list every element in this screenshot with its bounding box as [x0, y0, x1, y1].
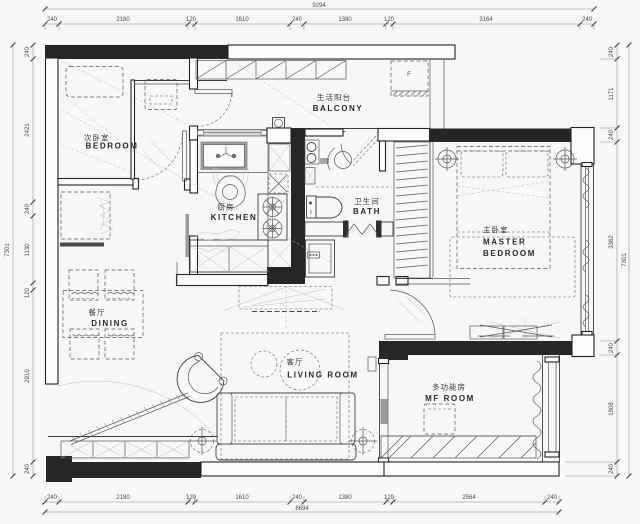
svg-text:120: 120	[186, 17, 197, 23]
svg-text:BEDROOM: BEDROOM	[86, 142, 139, 151]
svg-text:9294: 9294	[312, 3, 326, 9]
svg-text:DINING: DINING	[91, 319, 129, 328]
svg-text:240: 240	[609, 129, 615, 140]
svg-text:2564: 2564	[462, 495, 476, 501]
svg-text:1380: 1380	[338, 17, 352, 23]
svg-text:厨房: 厨房	[218, 202, 235, 212]
svg-text:120: 120	[384, 17, 395, 23]
svg-text:客厅: 客厅	[287, 357, 304, 367]
svg-text:2421: 2421	[25, 123, 31, 137]
svg-text:生活阳台: 生活阳台	[317, 92, 351, 102]
svg-text:240: 240	[609, 342, 615, 353]
svg-text:240: 240	[292, 495, 303, 501]
svg-text:F: F	[407, 72, 411, 78]
svg-text:BALCONY: BALCONY	[313, 104, 364, 113]
svg-text:卫生间: 卫生间	[354, 196, 380, 206]
svg-text:BATH: BATH	[353, 207, 381, 216]
svg-text:1171: 1171	[609, 87, 615, 101]
svg-text:MF ROOM: MF ROOM	[425, 394, 475, 403]
svg-text:7301: 7301	[622, 253, 628, 267]
svg-text:2180: 2180	[116, 495, 130, 501]
svg-text:240: 240	[609, 46, 615, 57]
svg-text:1130: 1130	[25, 243, 31, 257]
svg-text:1380: 1380	[338, 495, 352, 501]
svg-text:120: 120	[25, 287, 31, 298]
svg-text:240: 240	[609, 463, 615, 474]
svg-text:BEDROOM: BEDROOM	[483, 249, 536, 258]
svg-text:240: 240	[25, 203, 31, 214]
svg-text:240: 240	[47, 495, 58, 501]
svg-text:240: 240	[25, 463, 31, 474]
svg-text:2910: 2910	[25, 369, 31, 383]
svg-text:多功能房: 多功能房	[432, 382, 466, 392]
svg-text:主卧室: 主卧室	[483, 225, 509, 235]
svg-text:3164: 3164	[479, 17, 493, 23]
svg-text:1610: 1610	[235, 495, 249, 501]
svg-text:240: 240	[25, 46, 31, 57]
svg-text:1808: 1808	[609, 402, 615, 416]
svg-text:8694: 8694	[295, 506, 309, 512]
svg-text:240: 240	[47, 17, 58, 23]
svg-text:餐厅: 餐厅	[89, 308, 106, 317]
svg-text:7301: 7301	[5, 243, 11, 257]
svg-text:120: 120	[186, 495, 197, 501]
svg-text:MASTER: MASTER	[483, 238, 526, 247]
svg-text:240: 240	[582, 17, 593, 23]
svg-text:LIVING ROOM: LIVING ROOM	[287, 371, 358, 380]
svg-text:2180: 2180	[116, 17, 130, 23]
svg-text:3362: 3362	[609, 235, 615, 249]
svg-text:240: 240	[547, 495, 558, 501]
svg-text:120: 120	[384, 495, 395, 501]
svg-text:KITCHEN: KITCHEN	[211, 213, 258, 222]
svg-text:240: 240	[292, 17, 303, 23]
svg-text:1610: 1610	[235, 17, 249, 23]
